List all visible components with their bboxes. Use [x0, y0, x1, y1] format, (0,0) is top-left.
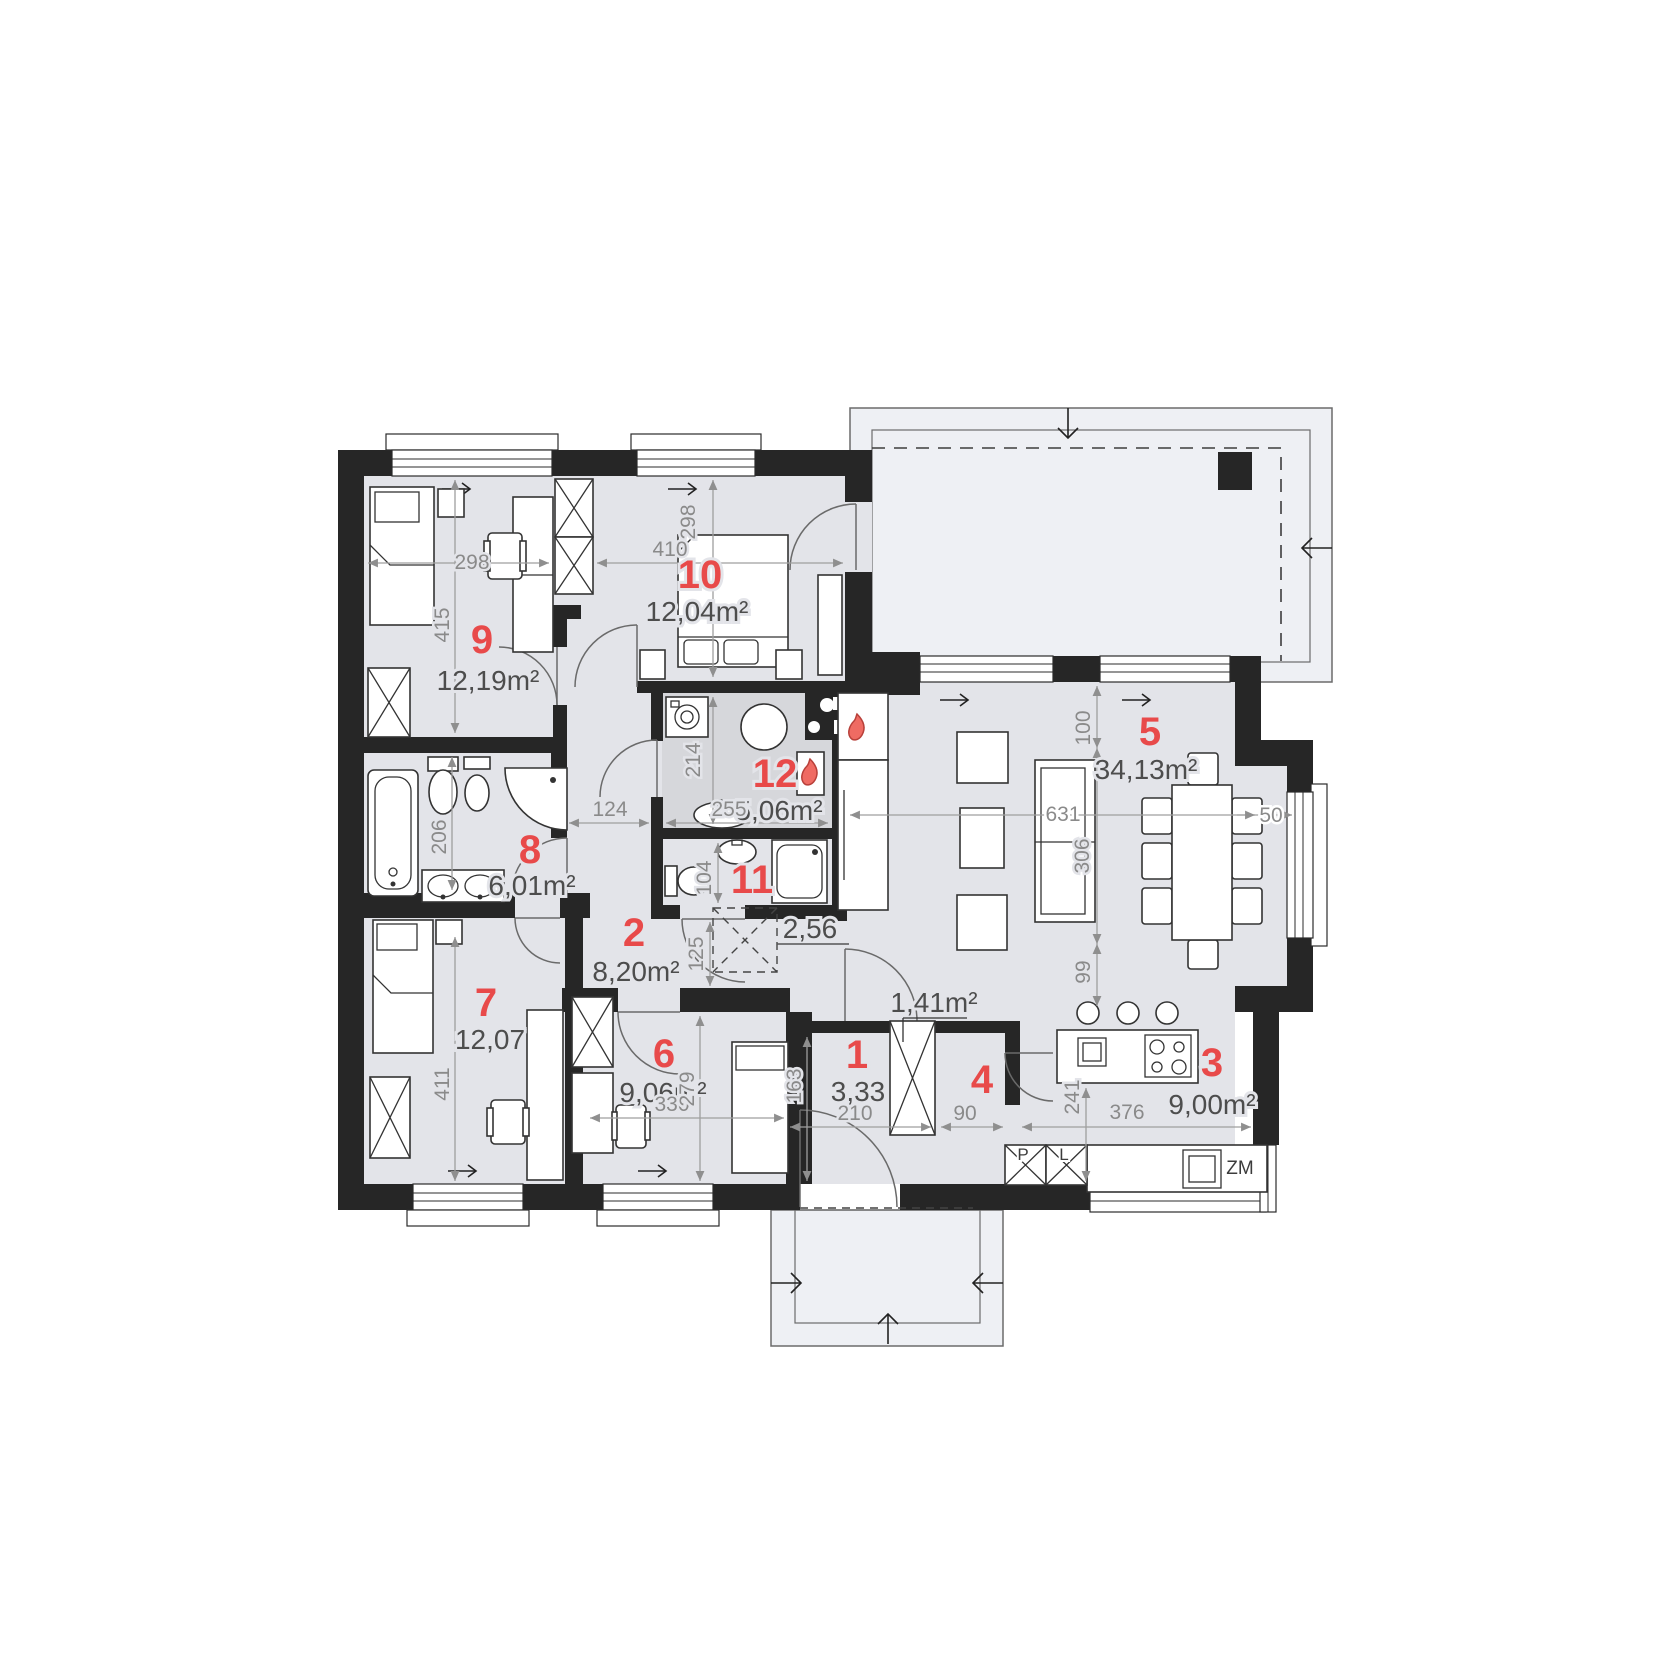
side-table — [957, 732, 1008, 783]
dim-room9-width: 298 — [454, 551, 489, 574]
window-room7 — [407, 1184, 529, 1226]
dim-room12-height: 214 — [682, 742, 705, 777]
bathtub — [368, 770, 418, 896]
toilet — [428, 757, 458, 814]
dim-corridor-125: 125 — [685, 936, 708, 971]
nightstand — [776, 650, 802, 679]
dim-room9-height: 415 — [431, 607, 454, 642]
bed — [373, 920, 433, 1053]
room-7-number: 7 — [475, 981, 497, 1025]
nightstand — [640, 650, 665, 679]
room-8-area: 6,01m² — [488, 870, 575, 901]
room-4-number: 4 — [971, 1058, 994, 1102]
room-5-number: 5 — [1139, 710, 1161, 754]
room-3-area: 9,00m² — [1168, 1089, 1255, 1120]
room-9-number: 9 — [471, 618, 493, 662]
closet-p-label: P — [1017, 1145, 1028, 1164]
closet-l-label: L — [1059, 1145, 1068, 1164]
bar-stool — [1156, 1002, 1178, 1024]
room-7-area: 12,07 — [455, 1024, 525, 1055]
floor-plan-page: 1 2 3 4 5 6 7 8 9 10 11 12 3,33 8,20m² 9… — [0, 0, 1680, 1680]
terrace-column — [1218, 452, 1252, 490]
entrance-porch — [771, 1210, 1003, 1346]
dishwasher-zm-label: ZM — [1226, 1158, 1253, 1179]
room-2-number: 2 — [623, 911, 645, 955]
bidet — [464, 757, 490, 811]
dim-hall-height: 163 — [783, 1068, 806, 1103]
wardrobe — [368, 668, 410, 737]
dim-kitchen-height: 241 — [1061, 1079, 1084, 1114]
dim-kitchen-width: 376 — [1109, 1101, 1144, 1124]
dim-room6-height: 279 — [676, 1071, 699, 1106]
room-2-area: 8,20m² — [592, 956, 679, 987]
washing-machine — [666, 697, 708, 737]
wardrobe — [370, 1077, 410, 1158]
desk — [527, 1010, 563, 1180]
shower — [772, 840, 827, 903]
sliding-door-living-1 — [920, 656, 1053, 682]
room-11-number: 11 — [731, 858, 773, 902]
desk-chair — [484, 533, 526, 579]
window-bay-dining — [1287, 784, 1327, 946]
window-room9 — [386, 434, 558, 476]
bed — [732, 1042, 788, 1173]
window-room10 — [631, 434, 761, 476]
dim-bath8-height: 206 — [428, 819, 451, 854]
desk-chair — [612, 1105, 650, 1148]
dim-living-306: 306 — [1071, 838, 1094, 873]
room-5-area: 34,13m² — [1095, 754, 1198, 785]
window-room6 — [597, 1184, 719, 1226]
dim-corridor-124: 124 — [592, 798, 627, 821]
dim-room10-height: 298 — [677, 504, 700, 539]
dim-room12-width: 255 — [711, 798, 746, 821]
room-6-number: 6 — [653, 1032, 675, 1076]
room-4-area: 1,41m² — [890, 987, 977, 1018]
desk — [572, 1073, 613, 1153]
dim-dining-50: 50 — [1259, 804, 1282, 827]
fireplace-unit — [838, 693, 888, 910]
wardrobe — [555, 479, 593, 594]
desk-chair — [487, 1100, 529, 1144]
nightstand — [438, 489, 464, 517]
room-9-area: 12,19m² — [437, 665, 540, 696]
terrace — [850, 408, 1332, 682]
floor-plan-drawing: 1 2 3 4 5 6 7 8 9 10 11 12 3,33 8,20m² 9… — [0, 0, 1680, 1680]
dim-room10-width: 410 — [652, 538, 687, 561]
dresser — [818, 575, 842, 675]
dim-room7-height: 411 — [431, 1067, 454, 1100]
bar-stool — [1077, 1002, 1099, 1024]
dim-living-100: 100 — [1072, 710, 1095, 745]
room-12-area: 5,06m² — [735, 795, 822, 826]
dining-table — [1172, 785, 1232, 940]
kitchen-island — [1057, 1030, 1198, 1083]
wardrobe — [572, 997, 613, 1067]
side-table — [957, 895, 1007, 950]
sliding-door-living-2 — [1100, 656, 1230, 682]
heater-unit — [797, 752, 824, 795]
bed — [370, 487, 434, 625]
bar-stool — [1117, 1002, 1139, 1024]
dim-room4-width: 90 — [953, 1102, 976, 1125]
nightstand — [436, 920, 462, 944]
boiler-tank — [741, 704, 787, 750]
dim-living-99: 99 — [1072, 960, 1095, 983]
dim-living-width: 631 — [1045, 803, 1080, 826]
room-3-number: 3 — [1201, 1041, 1223, 1085]
room-12-number: 12 — [753, 752, 798, 796]
side-table — [960, 808, 1004, 868]
terrace-door-threshold — [845, 502, 872, 572]
room-8-number: 8 — [519, 828, 541, 872]
hall-closet — [890, 1021, 935, 1135]
dim-room11-height: 104 — [693, 860, 716, 895]
room-1-number: 1 — [846, 1033, 868, 1077]
room-10-area: 12,04m² — [646, 596, 749, 627]
room-11-area: 2,56 — [783, 913, 838, 944]
dim-hall-width: 210 — [837, 1102, 872, 1125]
